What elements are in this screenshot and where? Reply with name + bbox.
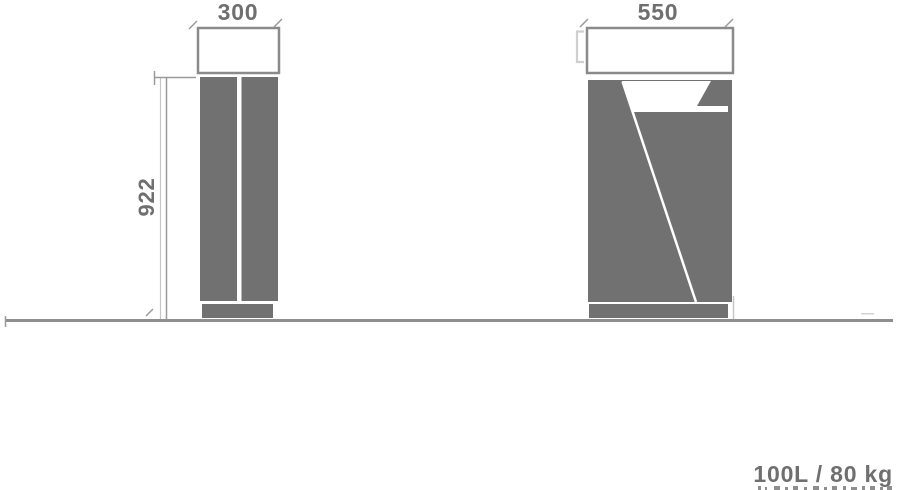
side-dim-tick-right bbox=[274, 19, 282, 27]
ground bbox=[5, 314, 893, 327]
dimension-diagram: 922 bbox=[0, 0, 898, 490]
side-lid-outline bbox=[198, 28, 279, 73]
height-dim-bottom-tick bbox=[146, 309, 153, 316]
depth-dim-label: 300 bbox=[218, 0, 259, 25]
front-lid-bracket bbox=[577, 32, 584, 63]
front-lid-outline bbox=[587, 28, 733, 73]
width-dim-label: 550 bbox=[638, 0, 679, 25]
front-base-plate bbox=[589, 304, 728, 318]
height-dim-label: 922 bbox=[134, 177, 159, 216]
front-elevation-view bbox=[577, 19, 734, 320]
diagram-stage: 922 bbox=[0, 0, 898, 490]
side-elevation-view bbox=[189, 19, 282, 318]
capacity-weight-label: 100L / 80 kg bbox=[753, 461, 893, 487]
front-dim-tick-left bbox=[580, 19, 588, 27]
side-dim-tick-left bbox=[189, 21, 197, 29]
side-body-right-panel bbox=[242, 77, 279, 301]
side-base-plate bbox=[202, 304, 273, 318]
side-body-left-panel bbox=[200, 77, 237, 301]
height-dimension: 922 bbox=[134, 71, 196, 319]
front-dim-tick-right bbox=[725, 19, 733, 27]
